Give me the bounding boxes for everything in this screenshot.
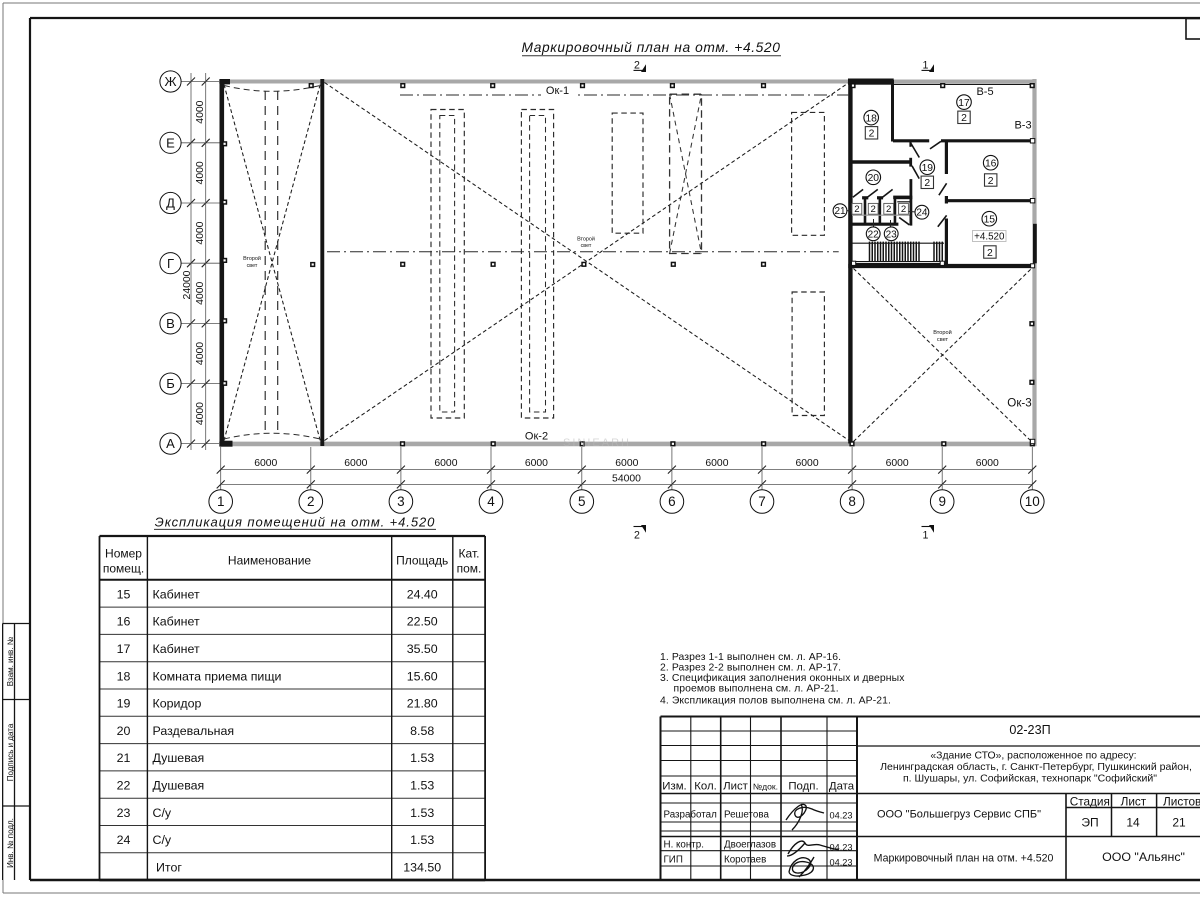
svg-text:02-23П: 02-23П [1009, 723, 1050, 737]
svg-text:Б: Б [166, 376, 175, 391]
svg-text:Комната приема пищи: Комната приема пищи [153, 669, 282, 683]
svg-text:Кабинет: Кабинет [153, 642, 200, 656]
svg-text:2: 2 [961, 113, 967, 124]
svg-text:ЭП: ЭП [1081, 815, 1098, 829]
svg-text:Ок-3: Ок-3 [1007, 396, 1031, 409]
svg-text:134.50: 134.50 [403, 860, 441, 874]
svg-text:ООО "Большегруз Сервис СПБ": ООО "Большегруз Сервис СПБ" [877, 809, 1041, 821]
svg-text:Лист: Лист [1121, 794, 1147, 808]
svg-text:3: 3 [397, 494, 405, 509]
svg-text:Ленинградская область, г. Санк: Ленинградская область, г. Санкт-Петербур… [880, 761, 1192, 773]
svg-text:Н. контр.: Н. контр. [664, 840, 704, 851]
svg-text:Кол.: Кол. [694, 781, 717, 793]
svg-text:Коридор: Коридор [153, 697, 202, 711]
svg-text:Кабинет: Кабинет [153, 587, 200, 601]
svg-text:22: 22 [868, 229, 880, 240]
svg-text:1.53: 1.53 [410, 751, 434, 765]
svg-text:Раздевальная: Раздевальная [153, 724, 235, 738]
svg-text:2: 2 [988, 176, 994, 187]
svg-text:6000: 6000 [795, 458, 818, 469]
svg-text:6000: 6000 [525, 458, 548, 469]
svg-text:54000: 54000 [612, 474, 641, 485]
svg-text:«Здание СТО», расположенное по: «Здание СТО», расположенное по адресу: [930, 751, 1136, 762]
svg-text:20: 20 [117, 724, 131, 738]
svg-text:23: 23 [886, 229, 898, 240]
svg-text:свет: свет [247, 263, 258, 269]
svg-text:5: 5 [578, 494, 586, 509]
svg-text:Е: Е [166, 135, 175, 150]
svg-text:6000: 6000 [705, 458, 728, 469]
svg-text:20: 20 [868, 173, 880, 184]
svg-text:свет: свет [937, 337, 949, 343]
svg-text:Наименование: Наименование [228, 554, 312, 568]
svg-text:Маркировочный план на отм. +4.: Маркировочный план на отм. +4.520 [522, 40, 781, 55]
svg-text:24.40: 24.40 [407, 587, 438, 601]
svg-text:ГИП: ГИП [664, 855, 683, 866]
svg-text:1. Разрез 1-1 выполнен см. л.: 1. Разрез 1-1 выполнен см. л. АР-16. [660, 652, 841, 663]
svg-text:В: В [166, 316, 175, 331]
svg-text:проемов выполнена см. л. АР-21: проемов выполнена см. л. АР-21. [674, 684, 839, 695]
svg-text:10: 10 [1025, 494, 1040, 509]
svg-text:В-3: В-3 [1014, 119, 1031, 131]
svg-text:8.58: 8.58 [410, 724, 434, 738]
svg-text:1.53: 1.53 [410, 806, 434, 820]
svg-text:Лист: Лист [723, 781, 749, 793]
svg-text:2. Разрез 2-2 выполнен см. л.: 2. Разрез 2-2 выполнен см. л. АР-17. [660, 663, 841, 674]
svg-text:Подп.: Подп. [788, 781, 818, 793]
svg-text:21: 21 [117, 751, 131, 765]
svg-text:6000: 6000 [615, 458, 638, 469]
svg-text:Ок-1: Ок-1 [546, 85, 569, 97]
svg-text:+4.520: +4.520 [974, 232, 1005, 243]
svg-text:24: 24 [916, 208, 928, 219]
svg-text:17: 17 [958, 98, 970, 109]
svg-text:35.50: 35.50 [407, 642, 438, 656]
svg-text:Номер: Номер [105, 547, 142, 561]
svg-text:4000: 4000 [195, 161, 206, 184]
svg-text:Решетова: Решетова [724, 810, 769, 821]
svg-text:22: 22 [117, 779, 131, 793]
svg-text:Изм.: Изм. [662, 781, 686, 793]
svg-text:В-5: В-5 [976, 86, 993, 98]
svg-text:4000: 4000 [195, 282, 206, 305]
svg-text:16: 16 [117, 615, 131, 629]
svg-text:1: 1 [923, 60, 929, 72]
svg-text:С/у: С/у [153, 806, 172, 820]
svg-text:19: 19 [922, 163, 934, 174]
svg-text:15: 15 [984, 214, 996, 225]
svg-text:3. Спецификация заполнения око: 3. Спецификация заполнения оконных и две… [660, 672, 905, 684]
svg-text:Душевая: Душевая [153, 779, 205, 793]
svg-text:23: 23 [117, 806, 131, 820]
svg-text:Ок-2: Ок-2 [525, 431, 548, 443]
svg-text:п. Шушары, ул. Софийская, техн: п. Шушары, ул. Софийская, технопарк "Соф… [903, 773, 1157, 785]
svg-text:7: 7 [758, 494, 766, 509]
svg-text:2: 2 [307, 494, 315, 509]
svg-text:Площадь: Площадь [396, 554, 448, 568]
svg-text:04.23: 04.23 [830, 858, 853, 868]
svg-text:Инв. № подл.: Инв. № подл. [6, 818, 15, 868]
svg-text:4000: 4000 [195, 100, 206, 123]
svg-text:2: 2 [869, 129, 875, 140]
svg-text:Взам. инв. №: Взам. инв. № [6, 636, 15, 686]
svg-text:2: 2 [886, 204, 891, 215]
svg-text:24000: 24000 [182, 270, 193, 299]
svg-text:18: 18 [865, 113, 877, 124]
svg-text:Двоеглазов: Двоеглазов [724, 840, 776, 851]
svg-text:2: 2 [854, 204, 859, 215]
svg-text:2: 2 [924, 178, 930, 189]
svg-text:14: 14 [1126, 815, 1140, 829]
svg-text:4: 4 [487, 494, 495, 509]
svg-text:16: 16 [985, 158, 997, 169]
svg-text:№док.: №док. [753, 782, 778, 792]
svg-text:Итог: Итог [156, 860, 182, 874]
svg-text:Маркировочный план на отм. +4.: Маркировочный план на отм. +4.520 [874, 853, 1054, 865]
svg-text:18: 18 [117, 669, 131, 683]
svg-text:15.60: 15.60 [407, 669, 438, 683]
svg-text:Стадия: Стадия [1070, 794, 1110, 808]
svg-text:21: 21 [834, 206, 846, 217]
svg-text:4000: 4000 [195, 221, 206, 244]
svg-text:Г: Г [167, 256, 174, 271]
svg-text:6000: 6000 [344, 458, 367, 469]
svg-text:8: 8 [848, 494, 856, 509]
svg-text:А: А [166, 436, 175, 451]
svg-text:1.53: 1.53 [410, 833, 434, 847]
svg-text:4000: 4000 [195, 342, 206, 365]
svg-text:2: 2 [634, 60, 640, 72]
svg-text:Ж: Ж [164, 74, 176, 89]
svg-text:6: 6 [668, 494, 676, 509]
svg-text:Второй: Второй [933, 329, 952, 336]
svg-text:6000: 6000 [254, 458, 277, 469]
svg-text:2: 2 [901, 204, 906, 215]
svg-text:4000: 4000 [195, 402, 206, 425]
svg-text:ООО "Альянс": ООО "Альянс" [1102, 850, 1185, 864]
svg-text:04.23: 04.23 [830, 811, 853, 821]
svg-text:Второй: Второй [577, 236, 595, 243]
svg-text:04.23: 04.23 [830, 843, 853, 853]
svg-text:21.80: 21.80 [407, 697, 438, 711]
svg-text:6000: 6000 [976, 458, 999, 469]
svg-text:9: 9 [938, 494, 946, 509]
svg-text:Подпись и дата: Подпись и дата [6, 723, 15, 781]
svg-text:Экспликация помещений на отм.: Экспликация помещений на отм. +4.520 [155, 515, 435, 530]
svg-text:свет: свет [581, 243, 592, 249]
svg-text:Коротаев: Коротаев [724, 855, 766, 866]
svg-text:Кат.: Кат. [459, 547, 480, 561]
svg-text:4. Экспликация полов выполнена: 4. Экспликация полов выполнена см. л. АР… [660, 695, 891, 706]
svg-text:15: 15 [117, 587, 131, 601]
svg-text:2: 2 [987, 248, 993, 259]
svg-text:19: 19 [117, 697, 131, 711]
svg-text:Душевая: Душевая [153, 751, 205, 765]
svg-text:Разработал: Разработал [664, 810, 718, 821]
svg-text:Листов: Листов [1163, 794, 1200, 808]
svg-text:С/у: С/у [153, 833, 172, 847]
svg-text:22.50: 22.50 [407, 615, 438, 629]
svg-text:17: 17 [117, 642, 131, 656]
svg-text:помещ.: помещ. [103, 562, 144, 576]
svg-text:Д: Д [166, 196, 175, 211]
svg-text:24: 24 [117, 833, 131, 847]
svg-text:1: 1 [217, 494, 225, 509]
svg-text:21: 21 [1172, 815, 1186, 829]
svg-text:6000: 6000 [886, 458, 909, 469]
svg-text:1: 1 [923, 530, 929, 542]
svg-text:6000: 6000 [434, 458, 457, 469]
svg-text:Кабинет: Кабинет [153, 615, 200, 629]
svg-text:2: 2 [871, 204, 876, 215]
svg-text:SINIEARH: SINIEARH [563, 437, 631, 449]
svg-text:Дата: Дата [829, 781, 855, 793]
svg-text:2: 2 [634, 530, 640, 542]
svg-text:1.53: 1.53 [410, 779, 434, 793]
svg-text:Второй: Второй [243, 255, 261, 262]
svg-text:пом.: пом. [457, 562, 482, 576]
